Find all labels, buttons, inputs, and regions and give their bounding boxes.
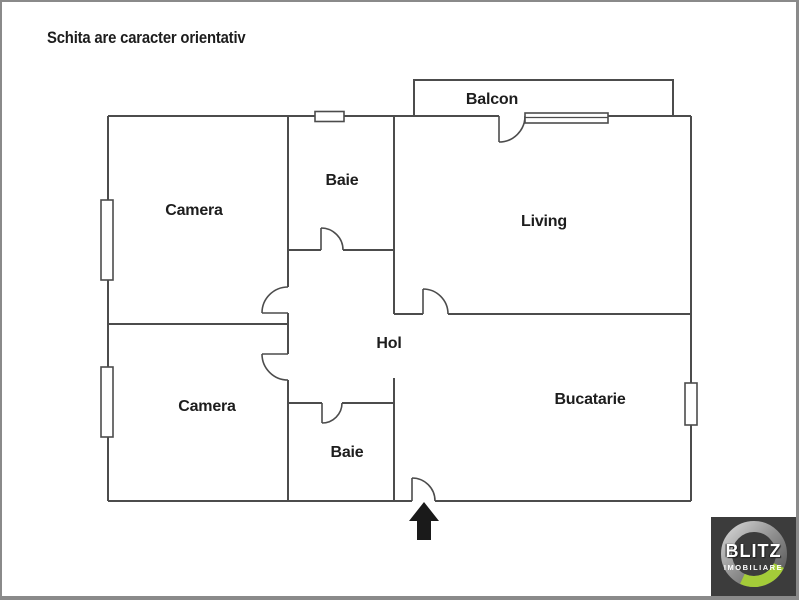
- entrance-arrow-icon: [409, 502, 439, 540]
- window-camera-top-left: [101, 200, 113, 280]
- door-entrance: [412, 478, 435, 501]
- room-label-hol: Hol: [376, 335, 401, 353]
- room-label-baie-bottom: Baie: [331, 444, 364, 462]
- outer-walls: [108, 116, 691, 501]
- agency-logo: BLITZ IMOBILIARE: [711, 517, 796, 596]
- door-camera-bottom: [262, 354, 288, 380]
- room-label-living: Living: [521, 213, 567, 231]
- floorplan-image: Schita are caracter orientativ: [0, 0, 799, 600]
- room-label-baie-top: Baie: [326, 172, 359, 190]
- room-label-balcon: Balcon: [466, 91, 518, 109]
- door-baie-bottom: [322, 403, 342, 423]
- window-camera-bottom-left: [101, 367, 113, 437]
- walls: [108, 80, 691, 501]
- logo-text-block: BLITZ IMOBILIARE: [711, 542, 796, 572]
- window-bucatarie-right: [685, 383, 697, 425]
- windows: [101, 112, 697, 438]
- door-balcon: [499, 116, 525, 142]
- logo-brand-text: BLITZ: [726, 542, 782, 560]
- door-baie-top: [321, 228, 343, 250]
- room-label-bucatarie: Bucatarie: [554, 391, 625, 409]
- door-living: [423, 289, 448, 314]
- balcony-outline: [414, 80, 673, 116]
- window-baie-top: [315, 112, 344, 122]
- floorplan-drawing: [0, 0, 799, 600]
- room-label-camera-bottom: Camera: [178, 398, 236, 416]
- room-label-camera-top: Camera: [165, 202, 223, 220]
- logo-tagline-text: IMOBILIARE: [724, 563, 783, 572]
- door-camera-top: [262, 287, 288, 313]
- inner-walls: [108, 116, 691, 501]
